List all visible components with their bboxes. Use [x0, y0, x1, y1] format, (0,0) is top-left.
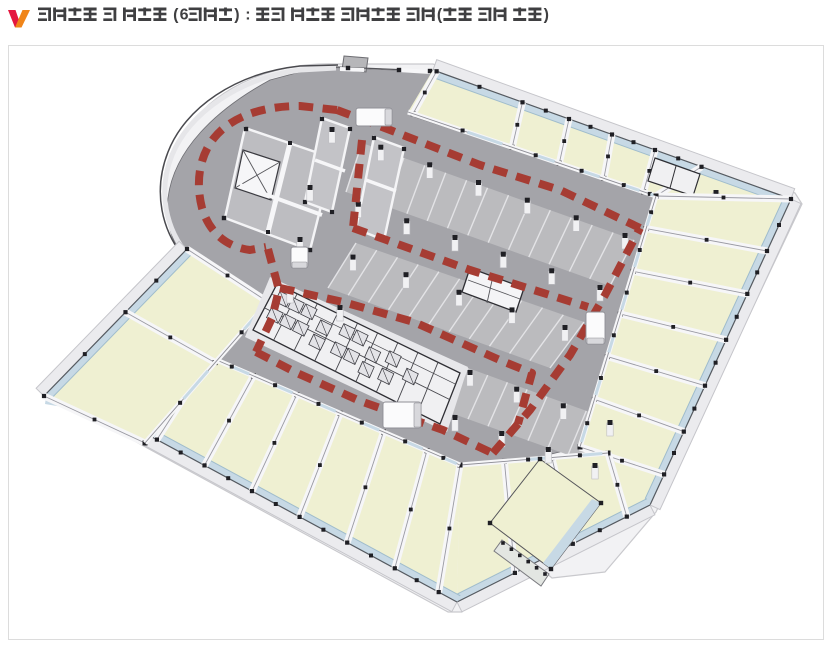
- svg-text:(: (: [173, 7, 179, 24]
- svg-text:): ): [544, 7, 549, 24]
- svg-text:): ): [234, 7, 239, 24]
- svg-text:6: 6: [180, 7, 189, 24]
- svg-text::: :: [245, 7, 250, 24]
- svg-text:(: (: [437, 7, 443, 24]
